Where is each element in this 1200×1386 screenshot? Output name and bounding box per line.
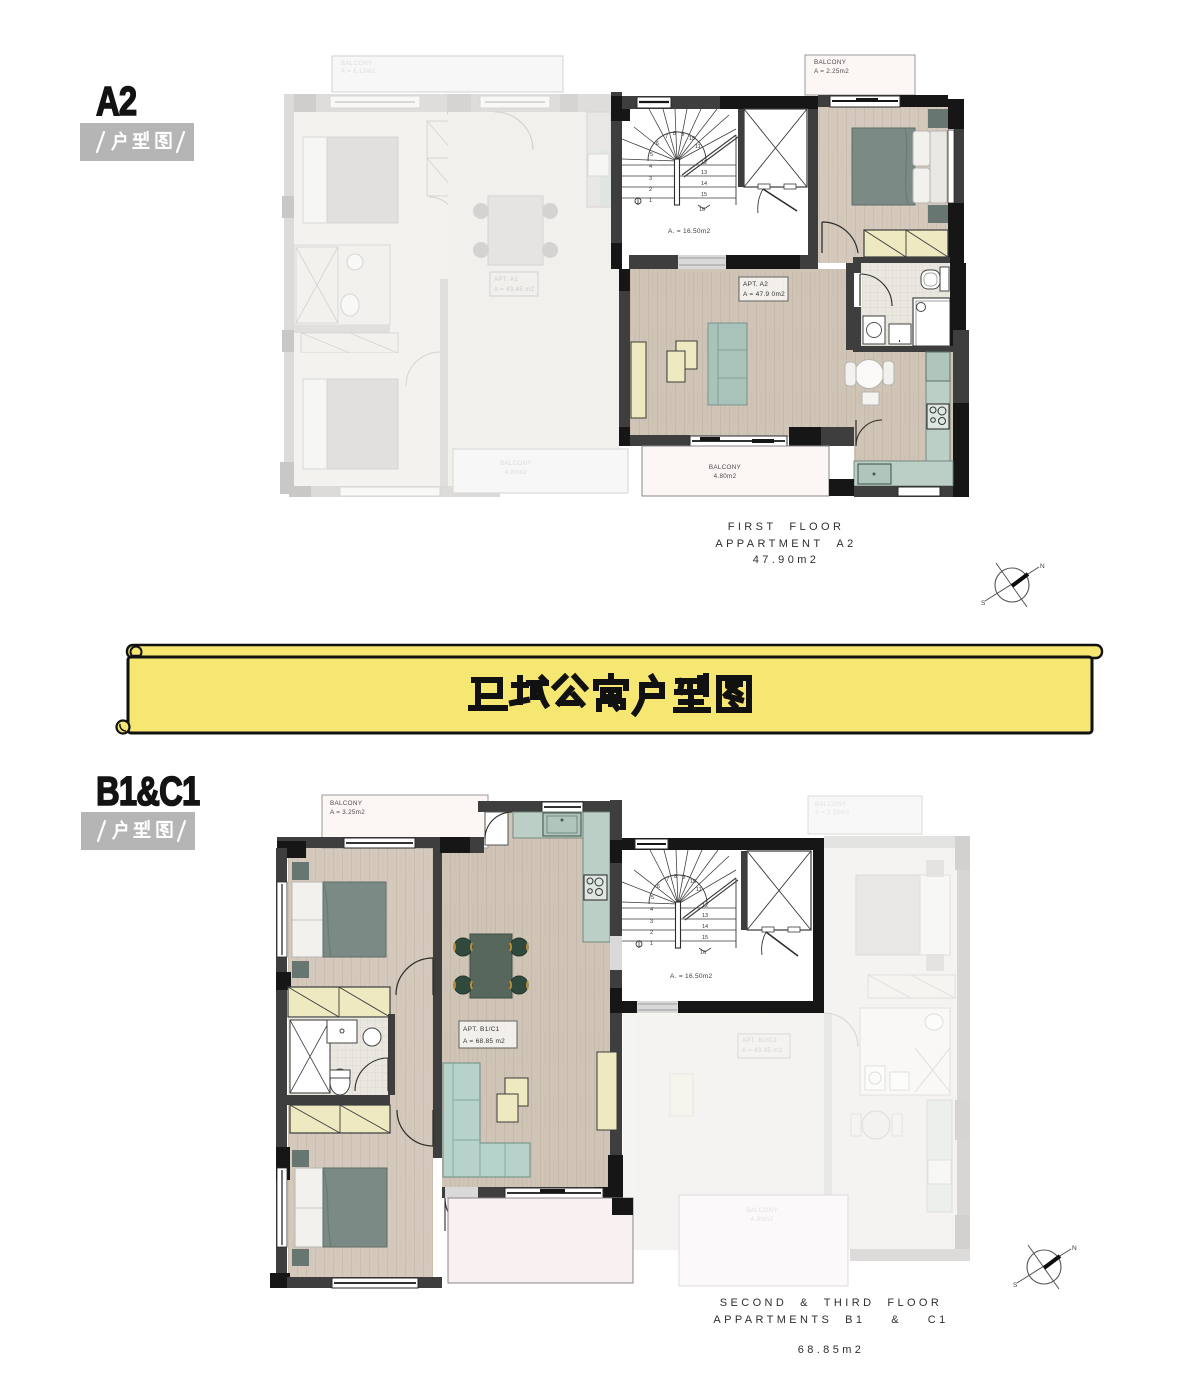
svg-text:1: 1 [650,941,653,947]
svg-text:A = 2.25m2: A = 2.25m2 [815,810,850,816]
svg-text:FIRST FLOOR: FIRST FLOOR [728,521,845,533]
svg-text:APT. A2: APT. A2 [743,281,768,288]
svg-text:APT. A1: APT. A1 [494,277,518,283]
svg-text:13: 13 [701,170,707,176]
svg-text:4.80m2: 4.80m2 [505,470,528,476]
svg-text:1: 1 [649,198,652,204]
svg-text:B1&C1: B1&C1 [96,767,200,813]
svg-text:4: 4 [650,907,653,913]
svg-text:BALCONY: BALCONY [330,800,363,807]
svg-text:BALCONY: BALCONY [500,461,531,467]
svg-text:7: 7 [666,877,669,883]
svg-text:A = 43.45 m2: A = 43.45 m2 [742,1048,783,1054]
svg-text:5: 5 [650,152,653,158]
svg-text:A. = 16.50m2: A. = 16.50m2 [670,973,713,980]
svg-text:15: 15 [702,935,708,941]
svg-text:3: 3 [650,919,653,925]
svg-text:11: 11 [695,144,701,150]
svg-text:SECOND & THIRD FLOOR: SECOND & THIRD FLOOR [720,1297,942,1309]
svg-text:7: 7 [665,134,668,140]
svg-text:2: 2 [649,187,652,193]
svg-text:4: 4 [649,164,652,170]
svg-text:APT. B1/C1: APT. B1/C1 [463,1026,500,1033]
svg-text:15: 15 [701,192,707,198]
svg-text:A2: A2 [96,77,137,123]
svg-text:9: 9 [681,132,684,138]
svg-text:6: 6 [657,884,660,890]
svg-text:12: 12 [701,160,707,166]
svg-text:BALCONY: BALCONY [709,464,742,471]
svg-text:BALCONY: BALCONY [815,802,846,808]
svg-text:11: 11 [696,887,702,893]
svg-text:N: N [1040,563,1045,570]
svg-text:8: 8 [673,131,676,137]
svg-text:BALCONY: BALCONY [746,1208,777,1214]
svg-text:APPARTMENTS B1 & C1: APPARTMENTS B1 & C1 [713,1314,948,1326]
svg-text:6: 6 [656,141,659,147]
svg-text:16: 16 [699,207,705,213]
svg-text:APPARTMENT A2: APPARTMENT A2 [715,538,856,550]
svg-text:16: 16 [700,950,706,956]
svg-text:A = 47.9 0m2: A = 47.9 0m2 [743,291,785,298]
svg-text:47.90m2: 47.90m2 [753,554,820,566]
svg-text:A = 68.85 m2: A = 68.85 m2 [463,1038,505,1045]
svg-text:S: S [981,600,986,607]
svg-text:68.85m2: 68.85m2 [798,1344,865,1356]
svg-text:10: 10 [690,879,696,885]
svg-text:12: 12 [702,903,708,909]
svg-text:14: 14 [702,924,708,930]
svg-text:9: 9 [682,875,685,881]
svg-text:4.80m2: 4.80m2 [714,473,737,480]
svg-text:3: 3 [649,176,652,182]
svg-text:A = 2.25m2: A = 2.25m2 [814,68,849,75]
svg-text:5: 5 [651,895,654,901]
svg-text:8: 8 [674,874,677,880]
svg-text:S: S [1013,1282,1018,1289]
svg-text:2: 2 [650,930,653,936]
svg-text:4.80m2: 4.80m2 [751,1217,774,1223]
svg-text:14: 14 [701,181,707,187]
svg-text:A. = 16.50m2: A. = 16.50m2 [668,228,711,235]
svg-text:BALCONY: BALCONY [814,59,847,66]
svg-text:10: 10 [689,136,695,142]
svg-text:A = 6.10m2: A = 6.10m2 [341,69,376,75]
svg-text:A = 43.45 m2: A = 43.45 m2 [494,287,535,293]
svg-text:N: N [1072,1245,1077,1252]
svg-text:13: 13 [702,913,708,919]
svg-text:BALCONY: BALCONY [341,61,372,67]
svg-text:APT. B2/C2: APT. B2/C2 [742,1038,777,1044]
svg-text:A = 3.25m2: A = 3.25m2 [330,809,365,816]
